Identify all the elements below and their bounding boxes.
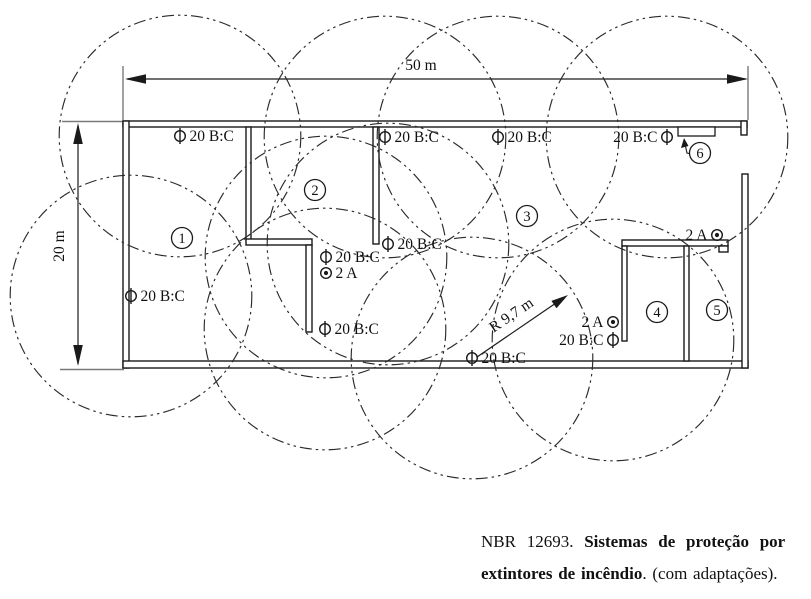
extinguisher-20bc-symbol (383, 236, 394, 252)
radius-arrowhead (551, 295, 568, 308)
extinguisher-rating-label: 20 B:C (482, 350, 526, 367)
extinguisher-rating-label: 2 A (336, 265, 359, 282)
dimension-height-label: 20 m (51, 230, 68, 261)
radius-arrow: R 9,7 m (477, 294, 568, 357)
extinguisher-rating-label: 20 B:C (141, 288, 185, 305)
extinguisher-rating-label: 20 B:C (335, 321, 379, 338)
svg-text:5: 5 (713, 303, 720, 319)
niche-pointer-head (681, 138, 689, 148)
wall-door-jamb (719, 246, 728, 252)
svg-text:1: 1 (178, 231, 185, 247)
wall-jog-horizontal (246, 239, 312, 245)
extinguisher-20bc-symbol (320, 321, 331, 337)
caption-reference: NBR 12693. (481, 532, 584, 551)
extinguisher-2a-symbol (608, 317, 619, 328)
arrowhead-up (73, 123, 83, 144)
room-number-1: 1 (172, 228, 193, 249)
extinguisher-20bc-symbol (175, 128, 186, 144)
extinguisher-20bc-symbol (321, 249, 332, 265)
extinguisher-rating-label: 20 B:C (395, 129, 439, 146)
room-number-3: 3 (517, 206, 538, 227)
svg-text:4: 4 (653, 305, 661, 321)
caption-title-bold: Sistemas de proteção por (584, 532, 785, 551)
caption-line-2: extintores de incêndio. (com adaptações)… (481, 558, 804, 590)
extinguisher-20bc-symbol (662, 129, 673, 145)
figure-nbr12693-floor-plan: 50 m 20 m (0, 0, 811, 599)
extinguisher-rating-label: 20 B:C (336, 249, 380, 266)
room-number-2: 2 (305, 180, 326, 201)
extinguisher-rating-label: 20 B:C (508, 129, 552, 146)
dimension-width: 50 m (125, 57, 748, 84)
wall-room2-right (373, 127, 379, 244)
wall-room1-room2-divider (246, 127, 251, 240)
wall-outer-top (123, 121, 747, 127)
room-number-labels: 123456 (172, 143, 728, 323)
wall-room4-left (622, 246, 627, 341)
floor-plan-svg: 50 m 20 m (0, 0, 811, 599)
radius-label: R 9,7 m (486, 294, 537, 336)
extinguisher-20bc-symbol (493, 129, 504, 145)
wall-room4-room5-divider (684, 246, 689, 361)
dimension-width-label: 50 m (405, 57, 436, 74)
arrowhead-right (727, 74, 748, 84)
figure-caption: NBR 12693. Sistemas de proteção por exti… (481, 526, 804, 590)
svg-text:6: 6 (696, 146, 703, 162)
caption-title-bold-2: extintores de incêndio (481, 564, 642, 583)
extinguisher-20bc-symbol (608, 332, 619, 348)
room-number-4: 4 (647, 302, 668, 323)
svg-text:3: 3 (523, 209, 530, 225)
room-number-5: 5 (707, 300, 728, 321)
extinguisher-2a-symbol (321, 268, 332, 279)
extinguisher-niche (678, 127, 715, 136)
arrowhead-down (73, 345, 83, 366)
caption-line-1: NBR 12693. Sistemas de proteção por (481, 526, 804, 558)
extinguisher-2a-symbol (712, 230, 723, 241)
extinguisher-20bc-symbol (380, 129, 391, 145)
wall-outer-bottom (123, 361, 748, 368)
room-number-6: 6 (690, 143, 711, 164)
extinguisher-rating-label: 2 A (686, 227, 709, 244)
caption-suffix: . (com adaptações). (642, 564, 777, 583)
arrowhead-left (125, 74, 146, 84)
extinguisher-rating-label: 2 A (582, 314, 605, 331)
extinguisher-rating-label: 20 B:C (559, 332, 603, 349)
wall-outer-right (742, 174, 748, 368)
wall-top-right-cap (741, 121, 747, 135)
wall-room4-room5-top (622, 240, 728, 246)
dimension-height: 20 m (51, 123, 83, 366)
wall-jog-vertical (306, 245, 312, 332)
extinguisher-markers: 20 B:C20 B:C20 B:C20 B:C20 B:C20 B:C20 B… (126, 128, 723, 367)
extinguisher-rating-label: 20 B:C (398, 236, 442, 253)
extinguisher-rating-label: 20 B:C (190, 128, 234, 145)
dimension-extension-lines (60, 66, 748, 370)
svg-text:2: 2 (311, 183, 318, 199)
extinguisher-rating-label: 20 B:C (613, 129, 657, 146)
